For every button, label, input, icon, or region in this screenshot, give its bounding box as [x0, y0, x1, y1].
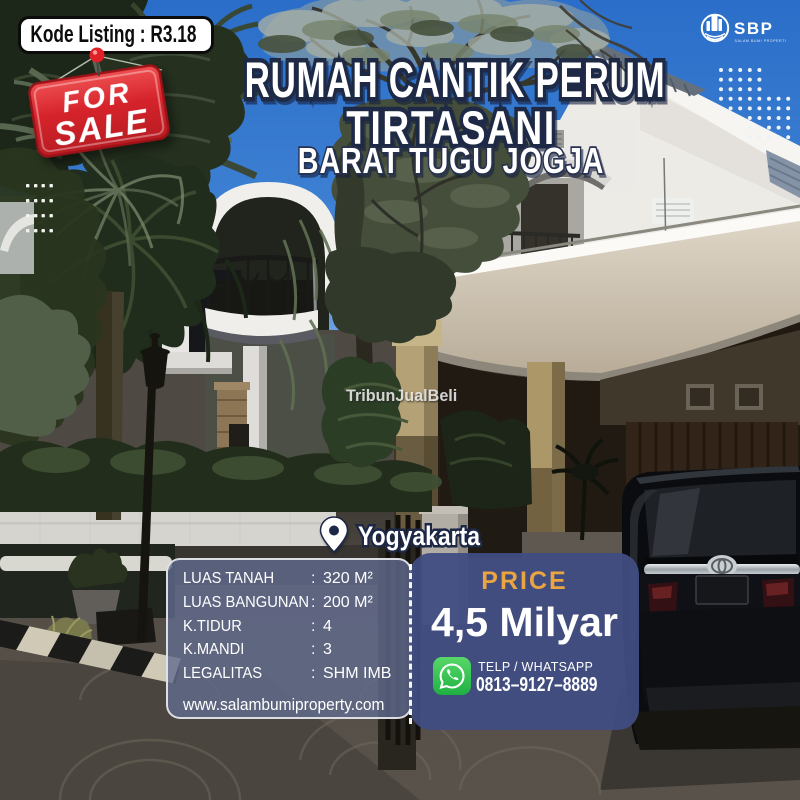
svg-text:BARAT TUGU JOGJA: BARAT TUGU JOGJA	[298, 140, 604, 181]
svg-text:RUMAH CANTIK PERUM: RUMAH CANTIK PERUM	[245, 53, 666, 109]
svg-text:Yogyakarta: Yogyakarta	[358, 521, 481, 551]
